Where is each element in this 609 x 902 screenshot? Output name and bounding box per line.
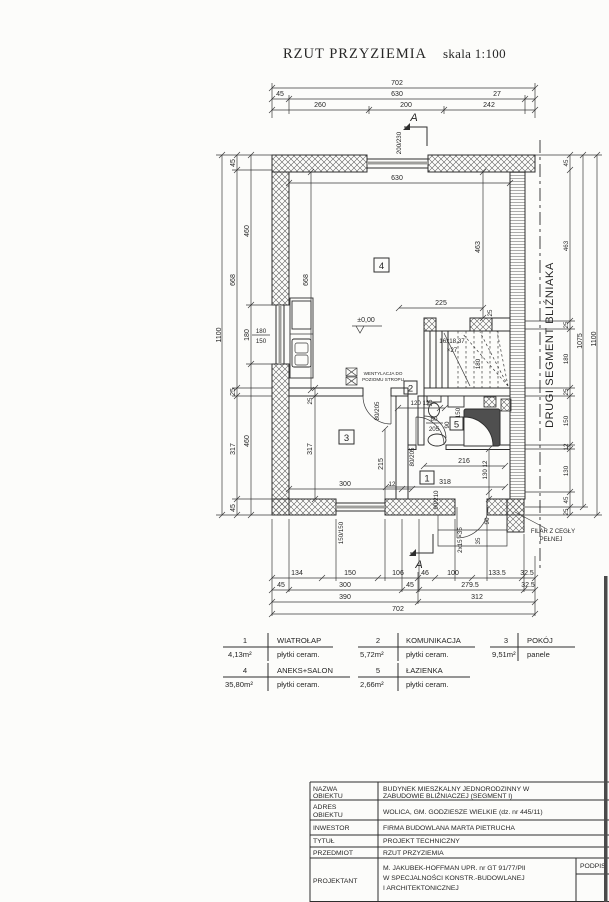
dim-label: 1075: [577, 333, 584, 349]
pillar-note-1: FILAR Z CEGŁY: [531, 529, 575, 535]
legend-area: 4,13m²: [228, 650, 252, 659]
door-bath-size-w: 80: [431, 416, 438, 423]
legend-area: 5,72m²: [360, 650, 384, 659]
window-left-height: 150: [256, 338, 267, 345]
dim-label: 25: [230, 388, 237, 396]
vent-duct: [501, 399, 511, 411]
dim-label: 300: [339, 582, 351, 589]
kitchen-counter: [290, 298, 313, 378]
legend-area: 35,80m²: [225, 680, 253, 689]
dim-label: 1100: [216, 327, 223, 342]
dim-line: [269, 599, 538, 605]
dim-label: 25: [563, 388, 570, 395]
drawing-sheet: RZUT PRZYZIEMIA skala 1:100: [0, 0, 609, 902]
dim-label: 45: [406, 582, 414, 589]
wall-left-lower: [272, 364, 289, 515]
window-top-glass: [367, 162, 428, 165]
section-label: A: [414, 559, 422, 571]
tb-value: BUDYNEK MIESZKALNY JEDNORODZINNY W: [383, 786, 530, 793]
legend-num: 4: [243, 666, 247, 675]
pillar-note-2: PEŁNEJ: [540, 537, 563, 543]
tb-value: PROJEKT TECHNICZNY: [383, 838, 460, 845]
window-left-width: 180: [256, 328, 267, 335]
dim-label: 130 12: [482, 460, 489, 479]
legend-num: 2: [376, 636, 380, 645]
legend-finish: płytki ceram.: [406, 680, 449, 689]
dim-chains-top: 702 45 630 27 260 200 242: [269, 80, 538, 118]
dim-chains-right: 45 463 25 180 25 150 12 130 45 25 1075 1…: [525, 152, 602, 518]
duct-hatched: [484, 397, 496, 407]
dim-label: 45: [276, 91, 284, 98]
dim-label: 25: [563, 508, 570, 515]
stairs-label: 16x18,37: [439, 338, 465, 345]
legend-name: ŁAZIENKA: [406, 666, 444, 675]
window-left-glass: [279, 305, 282, 364]
dim-label: 312: [471, 594, 483, 601]
tb-label: OBIEKTU: [313, 812, 343, 819]
dim-line: [269, 587, 538, 593]
dim-label: 32.5: [521, 582, 535, 589]
dim-label: 25: [563, 321, 570, 328]
legend-finish: płytki ceram.: [277, 680, 320, 689]
dim-label: 90: [484, 517, 491, 524]
dim-label: 225: [435, 300, 447, 307]
ext-lines: [272, 519, 535, 616]
dim-label: 150: [563, 415, 570, 426]
tb-value: W SPECJALNOŚCI KONSTR.-BUDOWLANEJ: [383, 873, 525, 882]
vent-x-1: [346, 368, 357, 376]
dim-label: 45: [563, 496, 570, 503]
dim-label: 35: [475, 537, 482, 544]
room-number-4: 4: [379, 261, 384, 272]
window-top-size: 200/230: [396, 131, 403, 154]
legend-name: KOMUNIKACJA: [406, 636, 462, 645]
tb-label: INWESTOR: [313, 825, 350, 832]
wall-room3-right: [396, 396, 408, 499]
section-marker-bottom: A: [409, 534, 433, 571]
legend-finish: panele: [527, 650, 550, 659]
dim-label: 25: [307, 397, 314, 404]
section-flag: [410, 534, 433, 553]
dim-label: 668: [303, 274, 310, 286]
dim-label: 35: [427, 399, 434, 406]
dim-chains-left: 1100 45 668 25 317 45 460 180 460 180 15…: [216, 152, 276, 518]
wall-bottom-b: [385, 499, 455, 515]
stair-winder-dashed: [462, 331, 508, 386]
tb-value: RZUT PRZYZIEMIA: [383, 850, 444, 857]
dim-label: 25: [487, 309, 494, 316]
room-number-1: 1: [424, 474, 429, 485]
dim-label: 463: [563, 240, 570, 251]
stairs-width: 180: [475, 358, 482, 369]
dim-label: 32.5: [520, 570, 534, 577]
dim-chains-bottom: 134 150 106 46 100 133.5 32.5 45 300 45 …: [269, 519, 538, 617]
dim-label: 27: [493, 91, 501, 98]
tb-label: TYTUŁ: [313, 838, 335, 845]
tb-label: PROJEKTANT: [313, 878, 357, 885]
dim-label: 317: [307, 443, 314, 455]
tb-value: FIRMA BUDOWLANA MARTA PIETRUCHA: [383, 825, 515, 832]
section-marker-top: A: [403, 112, 427, 146]
wall-left-upper: [272, 172, 289, 305]
title-block: NAZWA OBIEKTU BUDYNEK MIESZKALNY JEDNORO…: [310, 782, 609, 902]
vent-note-2: POZIOMU STROPU: [362, 377, 404, 382]
dim-label: 702: [391, 80, 403, 87]
dim-label: 630: [391, 175, 403, 182]
tb-value: M. JAKUBEK-HOFFMAN UPR. nr GT 91/77/PII: [383, 865, 526, 872]
vent-symbols: [346, 368, 357, 385]
tb-value: I ARCHITEKTONICZNEJ: [383, 885, 459, 892]
dim-label: 702: [392, 606, 404, 613]
dim-label: 12: [563, 443, 570, 450]
level-label: ±0,00: [357, 317, 375, 324]
dim-label: 463: [475, 241, 482, 253]
window-bottom-size: 150/150: [338, 521, 345, 544]
window-bottom-glass: [336, 506, 385, 509]
room-number-5: 5: [454, 420, 459, 431]
dim-label: 242: [483, 102, 495, 109]
drawing-scale: skala 1:100: [443, 46, 506, 61]
dim-label: 45: [563, 159, 570, 166]
legend-num: 1: [243, 636, 247, 645]
legend-finish: płytki ceram.: [277, 650, 320, 659]
door-bath-size-h: 205: [429, 426, 440, 433]
room-number-3: 3: [344, 433, 349, 444]
legend-num: 5: [376, 666, 380, 675]
stairs-label-2: ×27: [447, 347, 458, 354]
steps-outline: [438, 515, 507, 546]
level-symbol: [352, 326, 382, 333]
dim-line: [580, 152, 586, 510]
dim-label: 2x15 ×35: [457, 527, 464, 553]
party-wall-label: DRUGI SEGMENT BLIŹNIAKA: [543, 262, 556, 428]
dim-label: 1100: [591, 331, 598, 346]
dim-label: 390: [339, 594, 351, 601]
legend-name: WIATROŁAP: [277, 636, 321, 645]
stair-pier: [424, 318, 436, 331]
scan-edge-artifact: [604, 576, 608, 902]
tb-label: NAZWA: [313, 786, 338, 793]
dim-label: 106: [392, 570, 404, 577]
cooker: [292, 301, 311, 329]
dim-label: 460: [244, 435, 251, 447]
dim-label: 216: [458, 458, 470, 465]
dim-label: 318: [439, 479, 451, 486]
legend-num: 3: [504, 636, 508, 645]
dim-label: 300: [339, 481, 351, 488]
dim-label: 130: [563, 465, 570, 476]
wall-h-c: [424, 388, 510, 396]
drawing-title: RZUT PRZYZIEMIA: [283, 46, 427, 62]
dim-label: 45: [230, 504, 237, 512]
dim-line: [567, 152, 573, 518]
dim-label: 180: [563, 353, 570, 364]
dim-label: 180: [244, 329, 251, 341]
room-legend: 1 WIATROŁAP 4,13m² płytki ceram. 2 KOMUN…: [223, 633, 575, 691]
entry-steps: [438, 512, 545, 546]
wall-top-right: [428, 155, 535, 172]
floor-plan-drawing: RZUT PRZYZIEMIA skala 1:100: [0, 0, 609, 902]
party-wall: [510, 172, 525, 499]
dim-label: 279.5: [461, 582, 479, 589]
tb-value: ZABUDOWIE BLIŹNIACZEJ (SEGMENT I): [383, 791, 512, 800]
dim-label: 200: [400, 102, 412, 109]
door-hall-size: 80/205: [409, 447, 416, 466]
dim-label: 215: [378, 458, 385, 470]
legend-name: POKÓJ: [527, 636, 553, 645]
dim-label: 260: [314, 102, 326, 109]
dim-label: 668: [230, 274, 237, 286]
tb-label: PRZEDMIOT: [313, 850, 353, 857]
legend-finish: płytki ceram.: [406, 650, 449, 659]
room-number-2: 2: [408, 384, 413, 395]
dim-label: 317: [230, 443, 237, 455]
dim-label: 460: [244, 225, 251, 237]
legend-name: ANEKS+SALON: [277, 666, 333, 675]
dim-label: 134: [291, 570, 303, 577]
dim-label: 45: [277, 582, 285, 589]
tb-value: WOLICA, GM. GODZIESZE WIELKIE (dz. nr 44…: [383, 809, 543, 816]
wall-bottom-a: [272, 499, 336, 515]
vent-note-1: WENTYLACJA DO: [364, 371, 403, 376]
bath-niche: [448, 396, 464, 407]
legend-area: 9,51m²: [492, 650, 516, 659]
dim-label: 46: [421, 570, 429, 577]
tb-label: ADRES: [313, 804, 337, 811]
dim-line: [234, 152, 240, 518]
wall-top-left: [272, 155, 367, 172]
dim-label: 630: [391, 91, 403, 98]
vent-x-2: [346, 377, 357, 385]
staircase: [424, 331, 510, 388]
dim-label: 150: [344, 570, 356, 577]
dim-label: 100: [447, 570, 459, 577]
tb-signature-label: PODPIS: [580, 863, 606, 870]
section-label: A: [409, 112, 417, 124]
dim-label: 45: [230, 159, 237, 167]
dim-label: 133.5: [488, 570, 506, 577]
wall-stub: [492, 318, 510, 331]
wall-h-b: [391, 388, 408, 396]
tb-label: OBIEKTU: [313, 793, 343, 800]
door-room3-size: 80/205: [374, 401, 381, 420]
wall-h-a: [289, 388, 363, 396]
bathroom-fixtures: [427, 396, 511, 446]
door-entry-size: 90/210: [433, 490, 440, 509]
legend-area: 2,66m²: [360, 680, 384, 689]
